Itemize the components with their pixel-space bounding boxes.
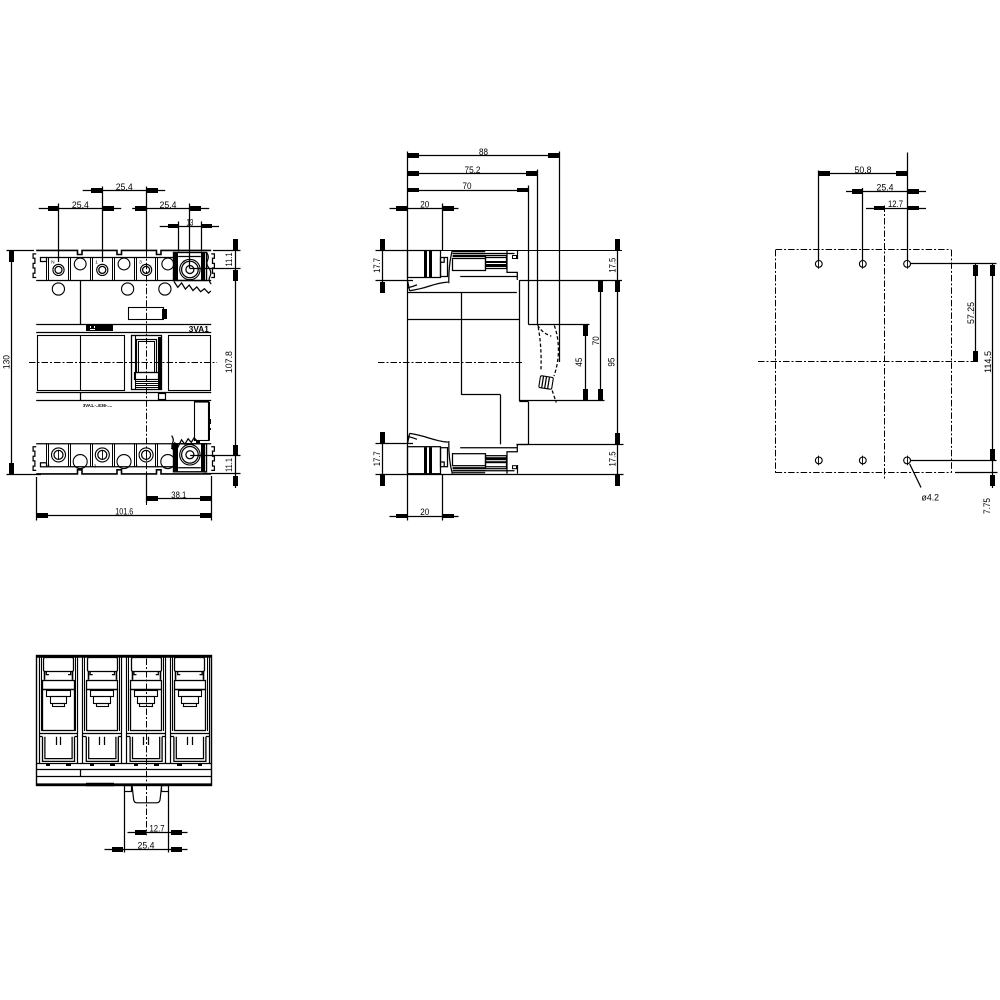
svg-text:12.7: 12.7 xyxy=(150,824,165,834)
svg-text:20: 20 xyxy=(420,507,429,517)
svg-text:ø4.2: ø4.2 xyxy=(922,493,940,503)
svg-text:11.1: 11.1 xyxy=(224,252,234,266)
svg-text:130: 130 xyxy=(2,355,12,369)
svg-text:20: 20 xyxy=(420,200,429,210)
svg-text:101.6: 101.6 xyxy=(115,506,133,516)
svg-text:1: 1 xyxy=(95,260,98,266)
svg-text:70: 70 xyxy=(463,181,472,191)
svg-text:6: 6 xyxy=(174,464,177,470)
svg-text:12.7: 12.7 xyxy=(888,199,903,209)
svg-text:4: 4 xyxy=(135,464,138,470)
svg-text:57.25: 57.25 xyxy=(966,302,976,324)
svg-text:25.4: 25.4 xyxy=(116,182,133,192)
svg-text:7.75: 7.75 xyxy=(982,498,992,514)
svg-text:13: 13 xyxy=(186,217,193,227)
svg-text:50.8: 50.8 xyxy=(855,165,872,175)
svg-text:114.5: 114.5 xyxy=(983,351,993,373)
svg-text:5: 5 xyxy=(183,260,186,266)
svg-text:11.1: 11.1 xyxy=(224,458,234,472)
svg-text:2: 2 xyxy=(94,464,97,470)
svg-text:107.8: 107.8 xyxy=(224,351,234,373)
svg-text:3: 3 xyxy=(139,260,142,266)
svg-text:N: N xyxy=(46,464,50,470)
svg-text:88: 88 xyxy=(479,147,488,157)
svg-text:17.5: 17.5 xyxy=(608,451,618,466)
svg-text:75.2: 75.2 xyxy=(465,165,481,175)
svg-text:45: 45 xyxy=(574,358,584,367)
svg-text:25.4: 25.4 xyxy=(160,200,177,210)
svg-text:17.7: 17.7 xyxy=(372,451,382,466)
svg-text:25.4: 25.4 xyxy=(72,200,89,210)
svg-text:38.1: 38.1 xyxy=(171,490,186,500)
svg-text:N: N xyxy=(51,260,55,266)
svg-text:25.4: 25.4 xyxy=(877,183,894,193)
svg-text:70: 70 xyxy=(591,336,601,345)
svg-text:17.7: 17.7 xyxy=(372,258,382,273)
svg-text:3VA1: 3VA1 xyxy=(189,325,209,334)
svg-text:95: 95 xyxy=(607,358,617,367)
svg-text:3VA1.-..E36-....: 3VA1.-..E36-.... xyxy=(83,403,112,408)
svg-text:25.4: 25.4 xyxy=(138,841,155,851)
svg-text:17.5: 17.5 xyxy=(608,258,618,273)
